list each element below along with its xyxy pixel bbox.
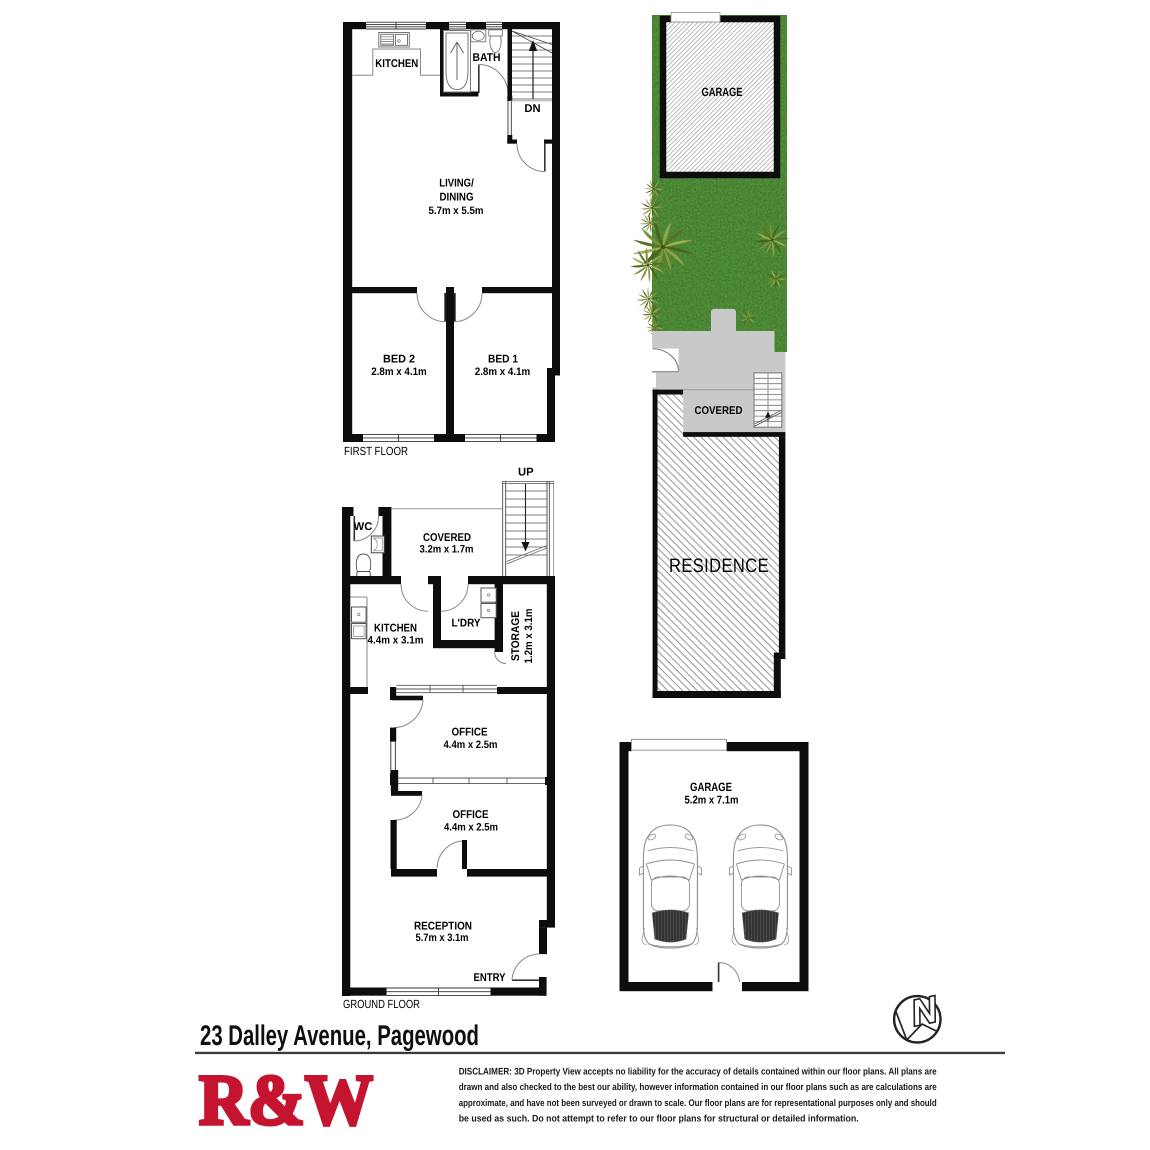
- svg-text:5.7m x 3.1m: 5.7m x 3.1m: [416, 932, 469, 944]
- svg-text:L'DRY: L'DRY: [452, 618, 481, 630]
- svg-text:ENTRY: ENTRY: [474, 972, 506, 984]
- svg-text:4.4m x 2.5m: 4.4m x 2.5m: [444, 739, 498, 751]
- svg-text:23 Dalley Avenue, Pagewood: 23 Dalley Avenue, Pagewood: [200, 1020, 479, 1052]
- svg-text:DINING: DINING: [440, 192, 474, 204]
- svg-text:COVERED: COVERED: [423, 532, 471, 544]
- svg-text:2.8m x 4.1m: 2.8m x 4.1m: [475, 366, 531, 378]
- svg-text:R&W: R&W: [199, 1060, 373, 1140]
- svg-text:GARAGE: GARAGE: [702, 85, 743, 99]
- svg-text:DISCLAIMER: 3D Property View a: DISCLAIMER: 3D Property View accepts no …: [459, 1067, 937, 1078]
- svg-text:OFFICE: OFFICE: [452, 727, 488, 739]
- svg-text:GARAGE: GARAGE: [690, 780, 732, 794]
- svg-text:BATH: BATH: [473, 52, 501, 64]
- svg-text:LIVING/: LIVING/: [439, 178, 474, 190]
- svg-text:RESIDENCE: RESIDENCE: [669, 555, 769, 577]
- svg-text:UP: UP: [518, 467, 534, 479]
- svg-text:KITCHEN: KITCHEN: [374, 623, 417, 635]
- svg-text:STORAGE: STORAGE: [510, 611, 522, 661]
- svg-text:4.4m x 2.5m: 4.4m x 2.5m: [444, 822, 498, 834]
- svg-text:FIRST FLOOR: FIRST FLOOR: [344, 444, 408, 458]
- svg-text:KITCHEN: KITCHEN: [375, 58, 418, 70]
- svg-text:3.2m x 1.7m: 3.2m x 1.7m: [420, 544, 474, 556]
- svg-text:BED 2: BED 2: [383, 354, 415, 366]
- svg-text:RECEPTION: RECEPTION: [414, 921, 472, 933]
- svg-text:1.2m x 3.1m: 1.2m x 3.1m: [523, 609, 535, 664]
- svg-text:2.8m x 4.1m: 2.8m x 4.1m: [371, 366, 427, 378]
- svg-text:OFFICE: OFFICE: [453, 809, 489, 821]
- svg-text:approximate, and have not been: approximate, and have not been surveyed …: [459, 1098, 937, 1109]
- svg-text:be used as such. Do not attemp: be used as such. Do not attempt to refer…: [459, 1114, 859, 1125]
- svg-text:drawn and also checked to the: drawn and also checked to the best our a…: [459, 1082, 937, 1093]
- svg-text:BED 1: BED 1: [488, 354, 518, 366]
- svg-text:5.7m x 5.5m: 5.7m x 5.5m: [429, 205, 484, 217]
- svg-text:GROUND FLOOR: GROUND FLOOR: [343, 997, 420, 1011]
- svg-text:COVERED: COVERED: [695, 405, 743, 417]
- svg-text:5.2m x 7.1m: 5.2m x 7.1m: [685, 795, 739, 807]
- svg-text:WC: WC: [354, 521, 373, 533]
- svg-text:4.4m x 3.1m: 4.4m x 3.1m: [368, 635, 424, 647]
- svg-text:DN: DN: [524, 103, 540, 115]
